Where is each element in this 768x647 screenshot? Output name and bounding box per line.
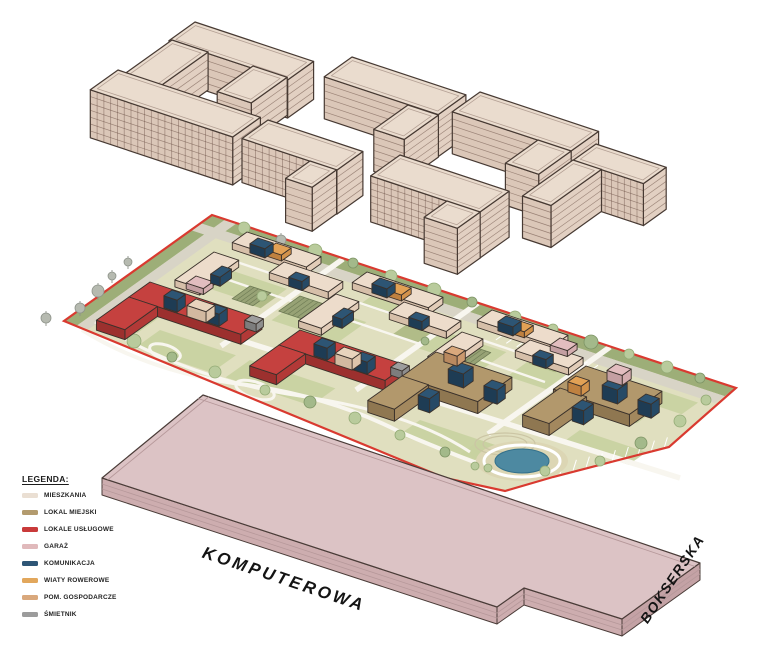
tree [92,285,104,297]
legend-item-smietnik: ŚMIETNIK [22,611,162,617]
tree [124,258,132,266]
legend-item-lokale-uslugowe: LOKALE USŁUGOWE [22,526,162,532]
komunikacja-swatch [22,561,38,566]
legend-item-label: LOKALE USŁUGOWE [44,526,114,533]
masterplan-canvas: LEGENDA: MIESZKANIALOKAL MIEJSKILOKALE U… [0,0,768,647]
legend-item-garaz: GARAŻ [22,543,162,549]
tree [471,462,479,470]
legend-item-label: GARAŻ [44,543,68,550]
legend-items: MIESZKANIALOKAL MIEJSKILOKALE USŁUGOWEGA… [22,492,162,617]
wiaty-rowerowe-swatch [22,578,38,583]
tree [695,373,705,383]
tree [108,272,116,280]
lokale-uslugowe-swatch [22,527,38,532]
tree [75,303,85,313]
legend-item-mieszkania: MIESZKANIA [22,492,162,498]
tree [584,335,598,349]
legend-item-pom-gospodarcze: POM. GOSPODARCZE [22,594,162,600]
tree [41,313,51,323]
tree [595,456,605,466]
tree [674,415,686,427]
tree [484,464,492,472]
tree [440,447,450,457]
legend-item-wiaty-rowerowe: WIATY ROWEROWE [22,577,162,583]
tree [348,258,358,268]
tree [304,396,316,408]
legend-item-label: WIATY ROWEROWE [44,577,109,584]
tree [540,466,550,476]
legend-item-label: POM. GOSPODARCZE [44,594,117,601]
legend-item-label: KOMUNIKACJA [44,560,95,567]
lokal-miejski-swatch [22,510,38,515]
legend-title: LEGENDA: [22,474,162,484]
tree [167,352,177,362]
tree [635,437,647,449]
legend-item-label: LOKAL MIEJSKI [44,509,97,516]
upper-building-masses [90,22,666,274]
legend-item-komunikacja: KOMUNIKACJA [22,560,162,566]
mieszkania-swatch [22,493,38,498]
tree [661,361,673,373]
tree [467,297,477,307]
tree [421,337,429,345]
pom-gospodarcze-swatch [22,595,38,600]
legend-item-lokal-miejski: LOKAL MIEJSKI [22,509,162,515]
legend-item-label: ŚMIETNIK [44,611,77,618]
garaz-swatch [22,544,38,549]
tree [349,412,361,424]
smietnik-swatch [22,612,38,617]
legend-item-label: MIESZKANIA [44,492,86,499]
tree [624,349,634,359]
tree [701,395,711,405]
tree [395,430,405,440]
tree [260,385,270,395]
tree [257,291,267,301]
tree [209,366,221,378]
legend: LEGENDA: MIESZKANIALOKAL MIEJSKILOKALE U… [22,474,162,628]
